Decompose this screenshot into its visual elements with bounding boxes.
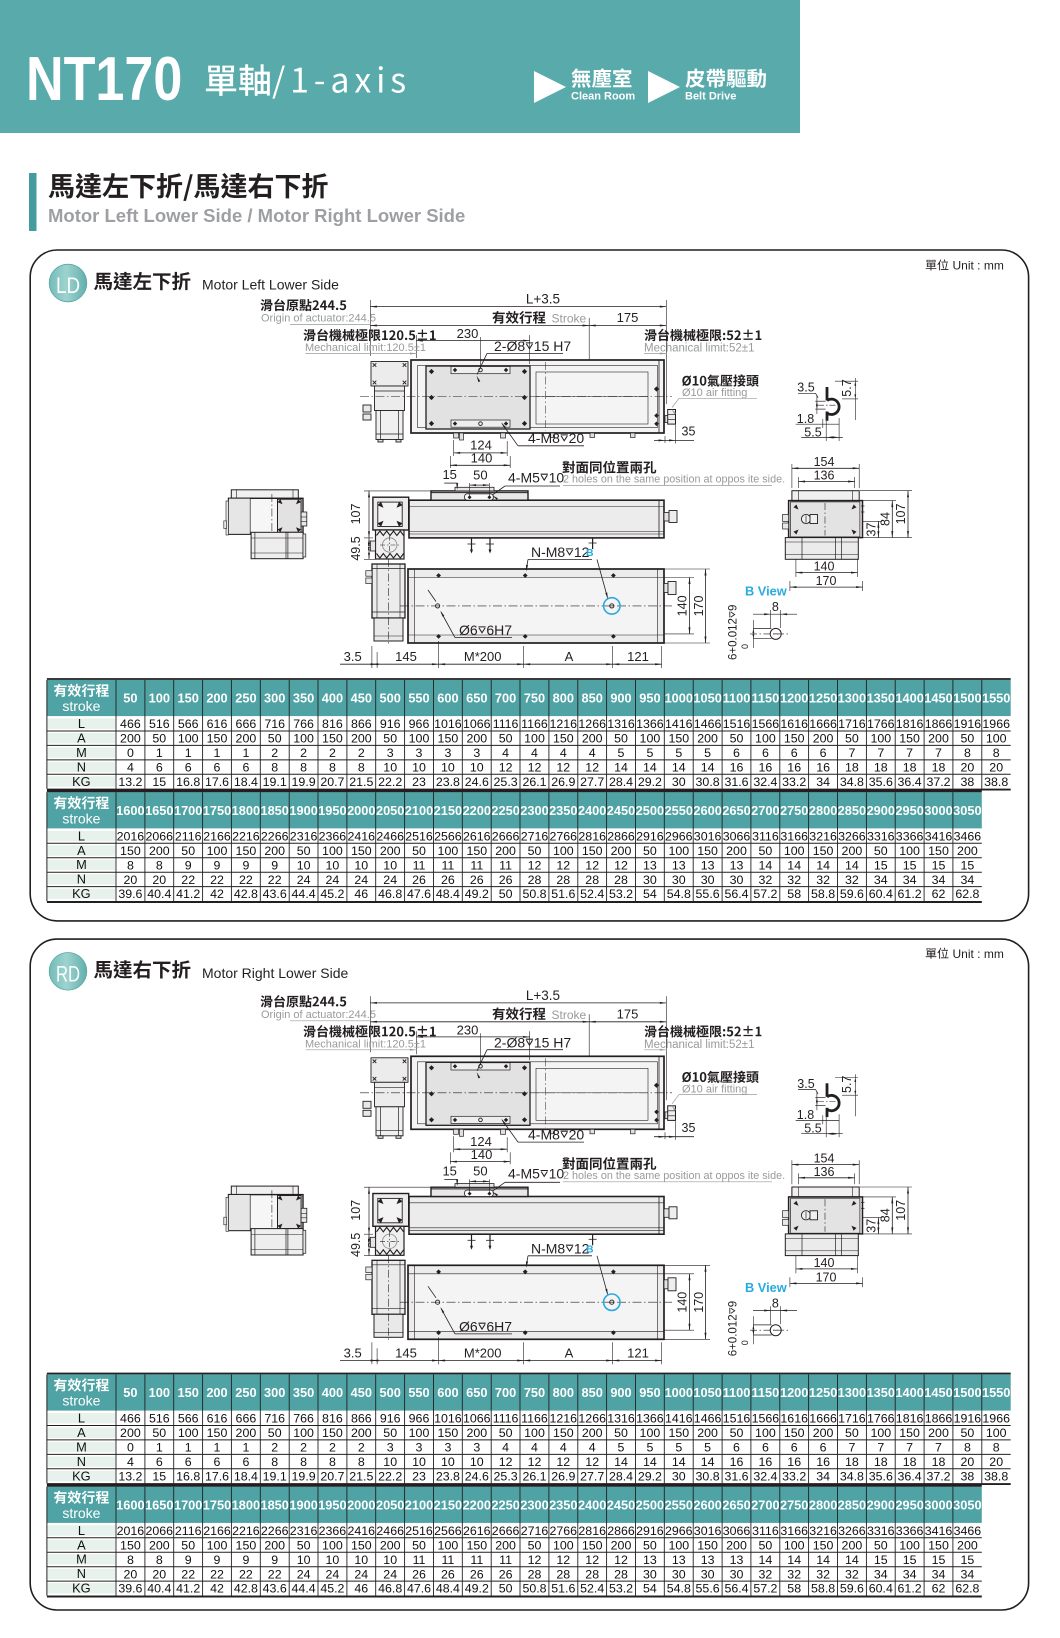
svg-text:NT170: NT170 — [26, 45, 182, 114]
svg-text:Unit : mm: Unit : mm — [953, 947, 1004, 961]
svg-text:Motor Left Lower Side / Motor: Motor Left Lower Side / Motor Right Lowe… — [48, 205, 465, 226]
svg-text:Motor Left Lower Side: Motor Left Lower Side — [202, 277, 339, 293]
svg-text:RD: RD — [56, 962, 80, 987]
svg-text:LD: LD — [56, 273, 80, 298]
svg-text:Unit : mm: Unit : mm — [953, 259, 1004, 273]
svg-text:Clean Room: Clean Room — [571, 91, 635, 103]
svg-text:Motor Right Lower Side: Motor Right Lower Side — [202, 965, 349, 981]
svg-text:Belt Drive: Belt Drive — [685, 91, 736, 103]
